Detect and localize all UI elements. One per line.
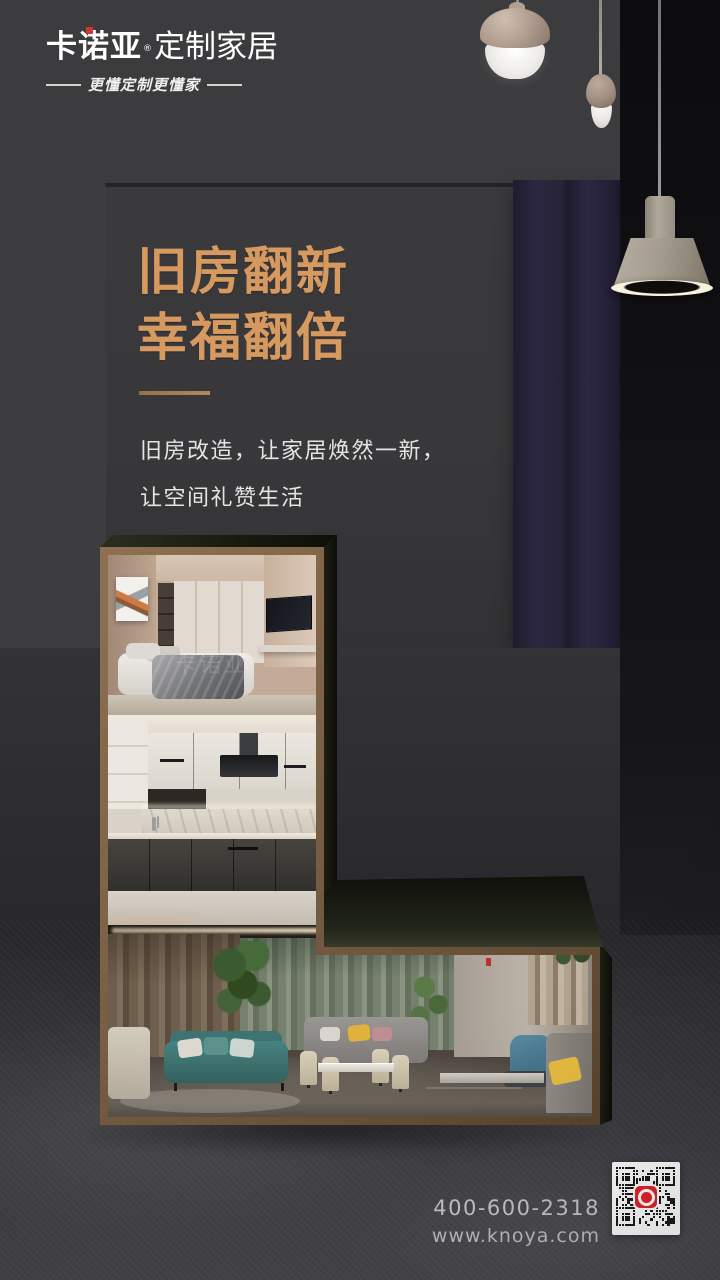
poster: 卡诺亚 ® 定制家居 更懂定制更懂家 旧房翻新 幸福翻倍 旧房改造，让家居焕然一…: [0, 0, 720, 1280]
qr-module: [656, 1224, 658, 1226]
qr-module: [673, 1184, 675, 1186]
qr-module: [642, 1216, 644, 1218]
qr-module: [662, 1196, 664, 1198]
qr-module: [667, 1178, 669, 1180]
qr-module: [650, 1218, 652, 1220]
block-side-face-vertical: [324, 535, 337, 892]
qr-module: [622, 1198, 624, 1200]
qr-module: [642, 1170, 644, 1172]
qr-module: [627, 1178, 629, 1180]
qr-module: [653, 1216, 655, 1218]
qr-module: [673, 1207, 675, 1209]
block-top-face-vertical: [100, 535, 337, 547]
qr-logo-ring: [638, 1189, 655, 1206]
qr-module: [647, 1224, 649, 1226]
qr-module: [647, 1213, 649, 1215]
contact-phone: 400-600-2318: [400, 1196, 600, 1220]
qr-center-logo: [635, 1186, 657, 1208]
qr-module: [659, 1201, 661, 1203]
qr-module: [633, 1224, 635, 1226]
qr-module: [639, 1221, 641, 1223]
qr-module: [662, 1224, 664, 1226]
qr-module: [647, 1178, 649, 1180]
qr-module: [636, 1173, 638, 1175]
qr-module: [667, 1224, 669, 1226]
contact-block: 400-600-2318 www.knoya.com: [400, 1196, 600, 1247]
block-top-face-horizontal: [324, 876, 603, 947]
contact-website: www.knoya.com: [400, 1225, 600, 1247]
qr-module: [673, 1221, 675, 1223]
qr-module: [627, 1218, 629, 1220]
block-side-face-horizontal: [600, 947, 612, 1125]
qr-module: [659, 1190, 661, 1192]
gallery-3d-frame: [0, 0, 720, 1280]
bronze-frame: [100, 547, 600, 1125]
qr-module: [667, 1207, 669, 1209]
qr-code: [612, 1162, 680, 1235]
